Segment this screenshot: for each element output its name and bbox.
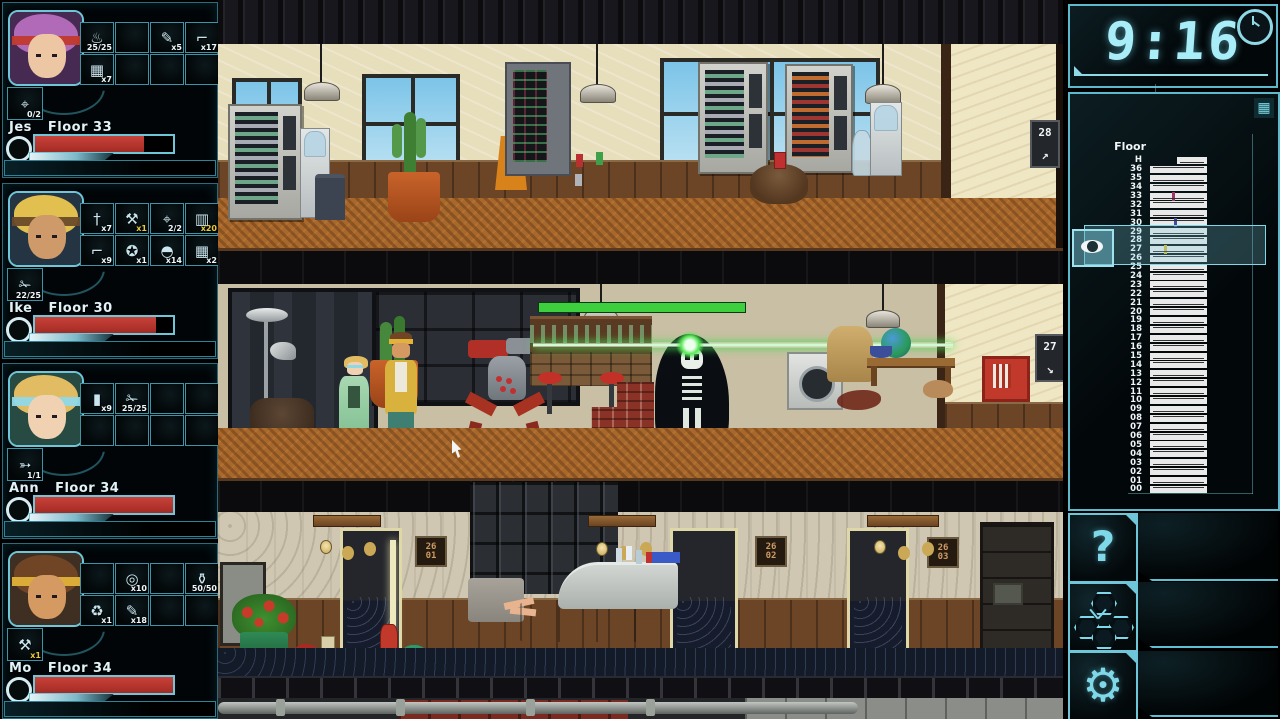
item-slot-empty[interactable] <box>185 595 219 626</box>
floor-row-22[interactable]: 22 <box>1070 289 1274 298</box>
enemy-hp-fill <box>539 303 745 312</box>
floor-bar <box>1150 184 1207 191</box>
hp-bar <box>33 675 175 695</box>
server-rack[interactable] <box>505 62 571 176</box>
floor-bar <box>1150 308 1207 315</box>
floor-bar <box>1150 415 1207 422</box>
item-slot-empty[interactable] <box>185 54 219 85</box>
floor-row-04[interactable]: 04 <box>1070 449 1274 458</box>
enemy-hp-bar <box>538 302 746 313</box>
party-sidebar: ♨25/25✎x5⌐x17▦x7 ⌖0/2 JesFloor 33 †x7⚒x1… <box>0 0 218 719</box>
room-sign-number: 01 <box>417 552 445 561</box>
floor-bar <box>1177 157 1207 164</box>
floor-bar <box>1150 290 1207 297</box>
character-name-row: JesFloor 33 <box>9 120 112 135</box>
item-count: x14 <box>166 256 182 265</box>
floor-number-label: 15 <box>1070 352 1142 360</box>
floor-bar <box>1150 335 1207 342</box>
item-count: x2 <box>206 256 217 265</box>
item-slot-circuit-board[interactable]: ▦x7 <box>80 54 114 85</box>
item-slot-crowbar[interactable]: ⌐x9 <box>80 235 114 266</box>
item-slot-duct-tape[interactable]: ◎x10 <box>115 563 149 594</box>
plant-pot <box>388 172 440 222</box>
weapon-ammo-count: x1 <box>30 651 41 660</box>
hp-circle <box>6 136 32 162</box>
status-strip <box>4 160 216 176</box>
down-right-arrow-icon: ↘ <box>1046 364 1053 374</box>
character-floor-label: Floor 30 <box>48 301 112 316</box>
character-name: Jes <box>9 120 32 135</box>
item-slot-empty[interactable] <box>185 415 219 446</box>
floor-number-label: 35 <box>1070 174 1142 182</box>
item-slot-empty[interactable] <box>80 415 114 446</box>
skills-button[interactable] <box>1068 582 1138 652</box>
item-count: x7 <box>101 75 112 84</box>
portrait-face <box>28 575 66 619</box>
soda-can[interactable] <box>576 154 583 167</box>
character-name: Mo <box>9 661 32 676</box>
reception-desk[interactable] <box>558 562 678 609</box>
bar-stool[interactable] <box>538 372 562 384</box>
hanging-lamp <box>866 310 900 328</box>
floor-row-00[interactable]: 00 <box>1070 485 1274 494</box>
hp-bar <box>33 134 175 154</box>
hp-fill <box>35 677 173 693</box>
lamp-cord <box>320 44 322 84</box>
clock-underline <box>1080 74 1268 76</box>
weapon-slot-axe[interactable]: ⚒x1 <box>7 628 43 661</box>
bench-legs <box>871 366 877 386</box>
item-count: 50/50 <box>192 584 217 593</box>
floor-bar <box>1150 273 1207 280</box>
floor-bar <box>1150 361 1207 368</box>
floor-row-16[interactable]: 16 <box>1070 343 1274 352</box>
room-sign-2602: 26 02 <box>755 536 787 567</box>
floor-lamp-dish <box>270 342 296 360</box>
floor-number-label: 05 <box>1070 441 1142 449</box>
bowl <box>870 346 892 358</box>
hp-circle <box>6 677 32 703</box>
portrait-eyes <box>36 235 41 238</box>
floor-bar <box>1150 477 1207 484</box>
bottles-on-desk <box>616 548 622 562</box>
floor-bar <box>1150 210 1207 217</box>
laser-impact-glow <box>676 331 704 359</box>
floor-number-label: 24 <box>1070 272 1142 280</box>
floor-bar <box>1150 344 1207 351</box>
floor-number-label: 13 <box>1070 370 1142 378</box>
floor-row-11[interactable]: 11 <box>1070 387 1274 396</box>
lamp-fixture <box>588 515 656 527</box>
item-slot-apple[interactable]: ✪x1 <box>115 235 149 266</box>
game-viewport[interactable]: ⚠ 28 ↗ <box>218 0 1063 719</box>
portrait-face <box>28 34 66 78</box>
floor-bar <box>1150 317 1207 324</box>
item-count: x9 <box>101 404 112 413</box>
hp-fill <box>35 497 173 513</box>
lamp-cord <box>596 44 598 86</box>
ceiling-floor28 <box>218 0 1063 46</box>
item-count: x18 <box>131 616 147 625</box>
elevator-floor-number: 28 <box>1038 128 1051 138</box>
bench-top[interactable] <box>867 358 955 368</box>
floor-number-label: 02 <box>1070 468 1142 476</box>
character-name: Ann <box>9 481 39 496</box>
carpet-floor27 <box>218 428 1063 478</box>
hp-bar <box>33 315 175 335</box>
floor-bar <box>1150 397 1207 404</box>
status-strip <box>4 521 216 537</box>
item-slot-empty[interactable] <box>150 415 184 446</box>
hp-fill <box>35 317 156 333</box>
floor-row-03[interactable]: 03 <box>1070 458 1274 467</box>
floor-number-label: 09 <box>1070 405 1142 413</box>
floor-number-label: 11 <box>1070 388 1142 396</box>
floor-bar <box>1150 370 1207 377</box>
fire-hose-box[interactable] <box>982 356 1030 402</box>
lamp-cord <box>882 44 884 86</box>
item-slot-empty[interactable] <box>150 54 184 85</box>
weapon-ammo-count: 0/2 <box>27 110 41 119</box>
floor-row-10[interactable]: 10 <box>1070 396 1274 405</box>
floor-number-label: H <box>1070 156 1142 164</box>
item-count: x1 <box>136 256 147 265</box>
floor-lamp-dish <box>246 308 288 322</box>
floor-bar <box>1150 468 1207 475</box>
floor-bar <box>1150 424 1207 431</box>
floor-number-label: 22 <box>1070 290 1142 298</box>
item-slot-empty[interactable] <box>115 22 149 53</box>
item-slot-gas-tank[interactable]: ⚱50/50 <box>185 563 219 594</box>
item-count: x17 <box>201 43 217 52</box>
floor-number-label: 06 <box>1070 432 1142 440</box>
item-count: x10 <box>131 584 147 593</box>
soda-can[interactable] <box>575 174 582 186</box>
floor-map-header: Floor <box>1070 140 1146 153</box>
hanging-lamp <box>580 84 616 103</box>
floor-row-33[interactable]: 33 <box>1070 192 1274 201</box>
digital-clock-time: 9:16 <box>1103 12 1244 72</box>
floor-row-31[interactable]: 31 <box>1070 209 1274 218</box>
floor-row-34[interactable]: 34 <box>1070 183 1274 192</box>
floor-bar <box>1150 406 1207 413</box>
floor-number-label: 01 <box>1070 477 1142 485</box>
item-slot-screw[interactable]: ✎x18 <box>115 595 149 626</box>
metal-door[interactable] <box>980 522 1054 661</box>
item-count: x1 <box>136 224 147 233</box>
carpet-floor26 <box>218 648 1063 678</box>
room-sign-number: 02 <box>757 552 785 561</box>
hp-circle <box>6 317 32 343</box>
eye-icon <box>1081 240 1103 253</box>
floor-number-label: 36 <box>1070 165 1142 173</box>
settings-button[interactable]: ⚙ <box>1068 651 1138 719</box>
weapon-slot-rifle[interactable]: ➳1/1 <box>7 448 43 481</box>
floor-bar <box>1150 193 1207 200</box>
room-sign-2601: 26 01 <box>415 536 447 567</box>
view-floors-button[interactable] <box>1072 229 1114 267</box>
floor-bar <box>1150 175 1207 182</box>
item-count: 25/25 <box>122 404 147 413</box>
floor-bar <box>1150 166 1207 173</box>
elevator-floor-number: 27 <box>1043 342 1056 352</box>
lamp-fixture <box>867 515 939 527</box>
floor-row-02[interactable]: 02 <box>1070 467 1274 476</box>
lamp-fixture <box>313 515 381 527</box>
floor-divider <box>218 248 1063 287</box>
weapon-slot-chainsaw[interactable]: ✁22/25 <box>7 268 43 301</box>
floor-row-H[interactable]: H <box>1070 156 1274 165</box>
floor-row-08[interactable]: 08 <box>1070 414 1274 423</box>
doorway-2602[interactable] <box>670 528 738 661</box>
portrait-face <box>28 215 66 259</box>
floor-bar <box>1150 379 1207 386</box>
floor-bar <box>1150 450 1207 457</box>
cactus-stalk[interactable] <box>404 112 416 178</box>
item-count: x1 <box>101 616 112 625</box>
hp-fill <box>35 136 144 152</box>
item-slot-screw[interactable]: ✎x5 <box>150 22 184 53</box>
pipe <box>218 702 858 714</box>
item-count: x7 <box>101 224 112 233</box>
floor-row-13[interactable]: 13 <box>1070 369 1274 378</box>
item-slot-empty[interactable] <box>115 415 149 446</box>
party-position-marker <box>1172 192 1175 201</box>
item-slot-empty[interactable] <box>150 595 184 626</box>
floor-number-label: 32 <box>1070 201 1142 209</box>
floor-number-label: 10 <box>1070 396 1142 404</box>
inventory-grid: †x7⚒x1⌖2/2▥x20⌐x9✪x1◓x14▦x2 <box>80 203 221 266</box>
floor-number-label: 19 <box>1070 316 1142 324</box>
floor-number-label: 14 <box>1070 361 1142 369</box>
lamp-bulbs <box>596 542 608 556</box>
character-name-row: AnnFloor 34 <box>9 481 119 496</box>
book-on-desk[interactable] <box>646 552 680 563</box>
floor-number-label: 20 <box>1070 308 1142 316</box>
floor-row-18[interactable]: 18 <box>1070 325 1274 334</box>
floor-divider <box>218 478 1063 515</box>
floor-row-12[interactable]: 12 <box>1070 378 1274 387</box>
canned-drink-on-table[interactable] <box>774 152 786 169</box>
item-slot-axe[interactable]: ⚒x1 <box>115 203 149 234</box>
elevator-indicator-28[interactable]: 28 ↗ <box>1030 120 1060 168</box>
item-slot-opened-can[interactable]: ◓x14 <box>150 235 184 266</box>
character-floor-label: Floor 34 <box>55 481 119 496</box>
floor-map-panel: ▦ Floor H3635343332313029282726252423222… <box>1068 92 1280 511</box>
pipe-collars <box>276 699 285 716</box>
settings-button-label-panel <box>1138 651 1278 717</box>
item-count: x20 <box>201 224 217 233</box>
floor-row-23[interactable]: 23 <box>1070 280 1274 289</box>
help-button-label-panel <box>1138 513 1278 581</box>
floor-number-label: 18 <box>1070 325 1142 333</box>
portrait-ike[interactable] <box>8 191 84 267</box>
floor-row-17[interactable]: 17 <box>1070 334 1274 343</box>
floor-row-14[interactable]: 14 <box>1070 360 1274 369</box>
portrait-eyes <box>36 415 41 418</box>
floor-number-label: 31 <box>1070 210 1142 218</box>
up-right-arrow-icon: ↗ <box>1041 150 1048 160</box>
portrait-eyes <box>36 595 41 598</box>
character-panel-jes[interactable]: ♨25/25✎x5⌐x17▦x7 ⌖0/2 JesFloor 33 <box>2 2 218 178</box>
item-slot-pistol[interactable]: ⌖2/2 <box>150 203 184 234</box>
vending-machine-snacks[interactable] <box>785 64 853 173</box>
lamp-bulbs <box>874 540 886 554</box>
small-creature[interactable] <box>923 380 953 398</box>
portrait-jes[interactable] <box>8 10 84 86</box>
weapon-ammo-count: 22/25 <box>16 291 41 300</box>
item-slot-prybar[interactable]: ⌐x17 <box>185 22 219 53</box>
status-strip <box>4 701 216 717</box>
elevator-indicator-27[interactable]: 27 ↘ <box>1035 334 1063 382</box>
floor-rows: H363534333231302928272625242322212019181… <box>1070 156 1274 494</box>
item-count: 25/25 <box>87 43 112 52</box>
item-count: x9 <box>101 256 112 265</box>
floor-number-label: 00 <box>1070 485 1142 493</box>
item-slot-empty[interactable] <box>115 54 149 85</box>
skills-button-label-panel <box>1138 582 1278 648</box>
floor-number-label: 04 <box>1070 450 1142 458</box>
floor-row-09[interactable]: 09 <box>1070 405 1274 414</box>
floor-bar <box>1150 388 1207 395</box>
inventory-grid: ♨25/25✎x5⌐x17▦x7 <box>80 22 221 85</box>
floor-row-21[interactable]: 21 <box>1070 298 1274 307</box>
hanging-lamp <box>865 84 901 104</box>
floor-bar <box>1150 441 1207 448</box>
item-count: 2/2 <box>168 224 182 233</box>
floor-row-15[interactable]: 15 <box>1070 352 1274 361</box>
portrait-face <box>28 395 66 439</box>
floor-number-label: 07 <box>1070 423 1142 431</box>
character-floor-label: Floor 34 <box>48 661 112 676</box>
armchair[interactable] <box>827 326 873 382</box>
floor-bar <box>1150 353 1207 360</box>
hp-bar <box>33 495 175 515</box>
item-slot-camping-stove[interactable]: ♨25/25 <box>80 22 114 53</box>
character-name-row: IkeFloor 30 <box>9 301 113 316</box>
floor-bar <box>1150 201 1207 208</box>
character-panel-mo[interactable]: ◎x10⚱50/50♻x1✎x18 ⚒x1 MoFloor 34 <box>2 543 218 719</box>
floor-number-label: 23 <box>1070 281 1142 289</box>
lamp-cord <box>882 284 884 312</box>
portrait-eyes <box>36 54 41 57</box>
character-panel-ike[interactable]: †x7⚒x1⌖2/2▥x20⌐x9✪x1◓x14▦x2 ✁22/25 IkeFl… <box>2 183 218 359</box>
floor-number-label: 16 <box>1070 343 1142 351</box>
floor-row-19[interactable]: 19 <box>1070 316 1274 325</box>
status-strip <box>4 341 216 357</box>
water-jug[interactable] <box>852 130 872 176</box>
clock-notch <box>1074 66 1084 76</box>
help-button[interactable]: ? <box>1068 513 1138 583</box>
vending-machine-bottles[interactable] <box>698 62 768 174</box>
lamp-bulbs <box>320 540 332 554</box>
floor-row-06[interactable]: 06 <box>1070 432 1274 441</box>
floor-number-label: 03 <box>1070 459 1142 467</box>
question-mark-icon: ? <box>1091 522 1115 571</box>
floor-bar <box>1150 326 1207 333</box>
character-name-row: MoFloor 34 <box>9 661 112 676</box>
cactus-arm <box>416 118 426 158</box>
floor-row-24[interactable]: 24 <box>1070 272 1274 281</box>
floor-row-36[interactable]: 36 <box>1070 165 1274 174</box>
item-slot-empty[interactable] <box>150 563 184 594</box>
item-slot-empty[interactable] <box>80 563 114 594</box>
item-slot-empty[interactable] <box>185 383 219 414</box>
floor-bar <box>1150 281 1207 288</box>
character-name: Ike <box>9 301 32 316</box>
bar-stool-pole <box>547 384 552 414</box>
inventory-grid: ▮x9✁25/25 <box>80 383 221 446</box>
floor-number-label: 17 <box>1070 334 1142 342</box>
hanging-lamp <box>304 82 340 101</box>
game-screen: ♨25/25✎x5⌐x17▦x7 ⌖0/2 JesFloor 33 †x7⚒x1… <box>0 0 1280 719</box>
item-slot-canned-food[interactable]: ▥x20 <box>185 203 219 234</box>
floor-row-01[interactable]: 01 <box>1070 476 1274 485</box>
weapon-slot-pistol[interactable]: ⌖0/2 <box>7 87 43 120</box>
item-slot-pine-freshener[interactable]: ♻x1 <box>80 595 114 626</box>
floor-number-label: 33 <box>1070 192 1142 200</box>
item-slot-empty[interactable] <box>150 383 184 414</box>
floor-number-label: 34 <box>1070 183 1142 191</box>
floor-bar <box>1150 299 1207 306</box>
floor-number-label: 12 <box>1070 379 1142 387</box>
circuit-trace <box>1155 84 1156 92</box>
water-cooler[interactable] <box>870 102 902 176</box>
item-slot-chainsaw[interactable]: ✁25/25 <box>115 383 149 414</box>
cactus-arm <box>392 124 402 158</box>
item-slot-bullet[interactable]: ▮x9 <box>80 383 114 414</box>
building-icon: ▦ <box>1254 98 1274 118</box>
floor-number-label: 21 <box>1070 299 1142 307</box>
floor-row-05[interactable]: 05 <box>1070 441 1274 450</box>
floor-bar <box>1150 486 1207 493</box>
clock-panel: 9:16 <box>1068 4 1278 88</box>
round-table[interactable] <box>750 164 808 204</box>
floor-bar <box>1150 459 1207 466</box>
floor-row-20[interactable]: 20 <box>1070 307 1274 316</box>
hp-circle <box>6 497 32 523</box>
floor-row-32[interactable]: 32 <box>1070 200 1274 209</box>
portrait-mo[interactable] <box>8 551 84 627</box>
analog-clock-icon <box>1237 9 1273 45</box>
item-slot-circuit-board[interactable]: ▦x2 <box>185 235 219 266</box>
room-sign-number: 03 <box>929 553 957 562</box>
item-count: x5 <box>171 43 182 52</box>
soda-can[interactable] <box>596 152 603 165</box>
floor-number-label: 08 <box>1070 414 1142 422</box>
gear-icon: ⚙ <box>1082 658 1123 712</box>
character-panel-ann[interactable]: ▮x9✁25/25 ➳1/1 AnnFloor 34 <box>2 363 218 539</box>
floor-row-07[interactable]: 07 <box>1070 423 1274 432</box>
character-floor-label: Floor 33 <box>48 120 112 135</box>
floor-bar <box>1150 433 1207 440</box>
item-slot-knife[interactable]: †x7 <box>80 203 114 234</box>
floor-row-35[interactable]: 35 <box>1070 174 1274 183</box>
portrait-ann[interactable] <box>8 371 84 447</box>
weapon-ammo-count: 1/1 <box>27 471 41 480</box>
trash-bin[interactable] <box>315 174 345 220</box>
inventory-grid: ◎x10⚱50/50♻x1✎x18 <box>80 563 221 626</box>
room-sign-2603: 26 03 <box>927 537 959 568</box>
vending-machine-bottles[interactable] <box>228 104 302 220</box>
